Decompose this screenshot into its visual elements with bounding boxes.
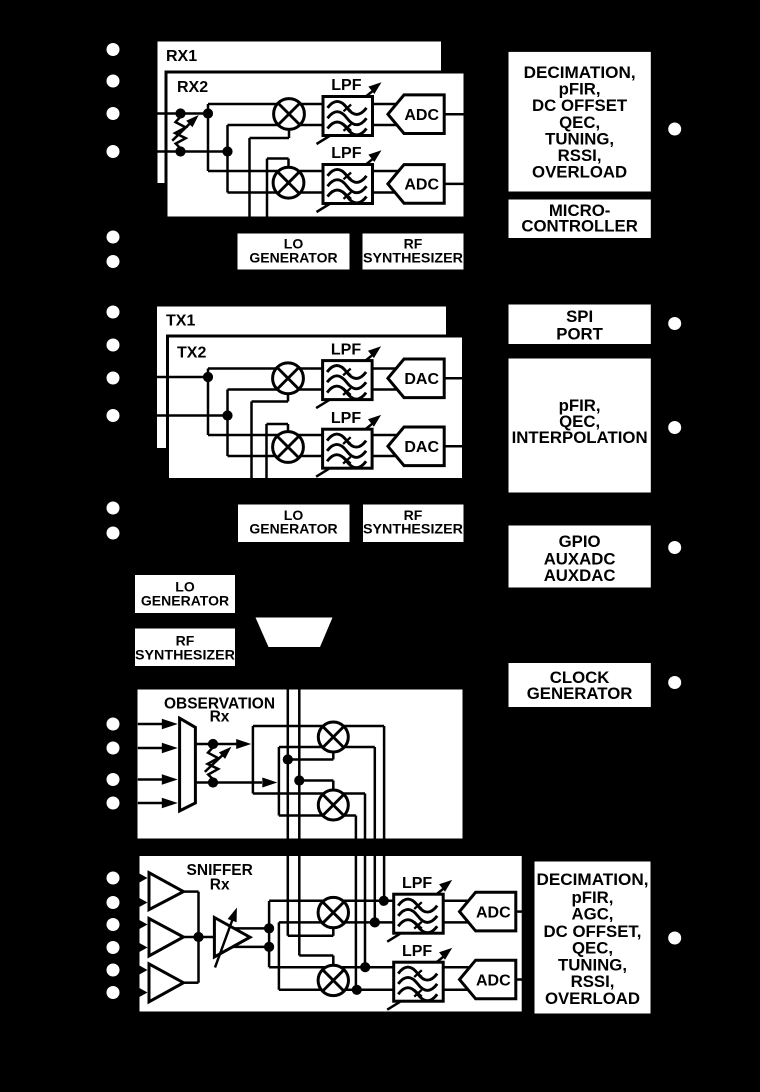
svg-text:SYNTHESIZER: SYNTHESIZER [363, 521, 463, 537]
svg-text:ADC: ADC [476, 972, 511, 989]
svg-text:LPF: LPF [331, 341, 361, 358]
svg-text:OVERLOAD: OVERLOAD [545, 989, 640, 1008]
svg-text:GENERATOR: GENERATOR [249, 521, 337, 537]
svg-text:GENERATOR: GENERATOR [249, 249, 337, 265]
svg-text:GPIO: GPIO [559, 532, 601, 551]
svg-text:TX1: TX1 [166, 313, 195, 330]
svg-text:LPF: LPF [402, 875, 432, 892]
svg-text:TX2: TX2 [177, 345, 206, 362]
svg-text:LPF: LPF [402, 943, 432, 960]
svg-text:Rx: Rx [210, 877, 230, 894]
svg-text:SPI: SPI [566, 307, 593, 326]
svg-text:SYNTHESIZER: SYNTHESIZER [135, 646, 235, 662]
svg-text:DAC: DAC [404, 371, 439, 388]
svg-text:GENERATOR: GENERATOR [141, 593, 229, 609]
svg-text:AGC,: AGC, [572, 904, 614, 923]
svg-text:AUXDAC: AUXDAC [544, 566, 616, 585]
svg-text:RX1: RX1 [166, 48, 197, 65]
svg-text:LPF: LPF [331, 77, 361, 94]
svg-text:SYNTHESIZER: SYNTHESIZER [363, 249, 463, 265]
svg-text:ADC: ADC [404, 107, 439, 124]
svg-text:OVERLOAD: OVERLOAD [532, 163, 627, 182]
svg-text:RX2: RX2 [177, 79, 208, 96]
svg-text:LPF: LPF [331, 410, 361, 427]
svg-text:GENERATOR: GENERATOR [527, 684, 633, 703]
svg-text:INTERPOLATION: INTERPOLATION [512, 428, 648, 447]
svg-text:Rx: Rx [210, 709, 230, 726]
svg-text:PORT: PORT [556, 324, 603, 343]
svg-text:LPF: LPF [331, 145, 361, 162]
svg-text:ADC: ADC [404, 177, 439, 194]
svg-text:DECIMATION,: DECIMATION, [537, 870, 649, 889]
svg-text:ADC: ADC [476, 904, 511, 921]
svg-text:CONTROLLER: CONTROLLER [521, 217, 638, 236]
svg-text:DAC: DAC [404, 439, 439, 456]
